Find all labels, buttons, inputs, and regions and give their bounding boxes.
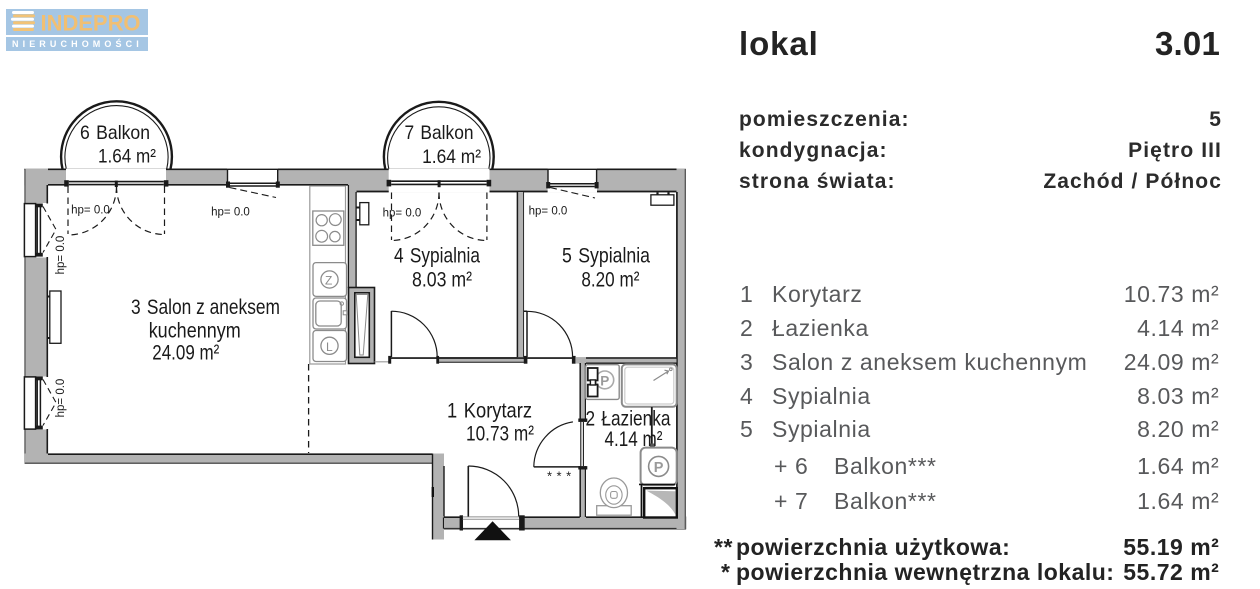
svg-text:8.20 m²: 8.20 m² bbox=[581, 269, 639, 292]
svg-text:hp= 0.0: hp= 0.0 bbox=[55, 236, 67, 275]
svg-text:1 Korytarz: 1 Korytarz bbox=[447, 400, 532, 423]
svg-text:10.73 m²: 10.73 m² bbox=[466, 423, 534, 446]
svg-text:24.09 m²: 24.09 m² bbox=[152, 342, 219, 365]
svg-text:INDEPRO: INDEPRO bbox=[41, 11, 141, 36]
svg-text:4.14 m²: 4.14 m² bbox=[605, 428, 663, 451]
svg-text:hp= 0.0: hp= 0.0 bbox=[529, 206, 568, 218]
svg-text:hp= 0.0: hp= 0.0 bbox=[55, 379, 67, 418]
svg-text:1.64 m²: 1.64 m² bbox=[98, 146, 156, 168]
svg-text:7 Balkon: 7 Balkon bbox=[405, 122, 474, 144]
svg-text:hp= 0.0: hp= 0.0 bbox=[383, 208, 422, 220]
svg-text:hp= 0.0: hp= 0.0 bbox=[71, 205, 110, 217]
svg-text:***: *** bbox=[547, 469, 576, 484]
svg-text:Z: Z bbox=[325, 274, 332, 288]
svg-text:8.03 m²: 8.03 m² bbox=[412, 269, 472, 292]
svg-text:6 Balkon: 6 Balkon bbox=[80, 122, 150, 144]
svg-text:4 Sypialnia: 4 Sypialnia bbox=[394, 245, 480, 268]
svg-text:kuchennym: kuchennym bbox=[149, 320, 241, 343]
svg-text:hp= 0.0: hp= 0.0 bbox=[211, 207, 250, 219]
svg-text:5 Sypialnia: 5 Sypialnia bbox=[562, 245, 650, 268]
svg-text:P: P bbox=[654, 460, 664, 476]
svg-text:P: P bbox=[600, 373, 609, 388]
svg-text:3 Salon z aneksem: 3 Salon z aneksem bbox=[131, 296, 280, 319]
svg-text:1.64 m²: 1.64 m² bbox=[422, 146, 481, 168]
svg-text:L: L bbox=[326, 340, 333, 354]
